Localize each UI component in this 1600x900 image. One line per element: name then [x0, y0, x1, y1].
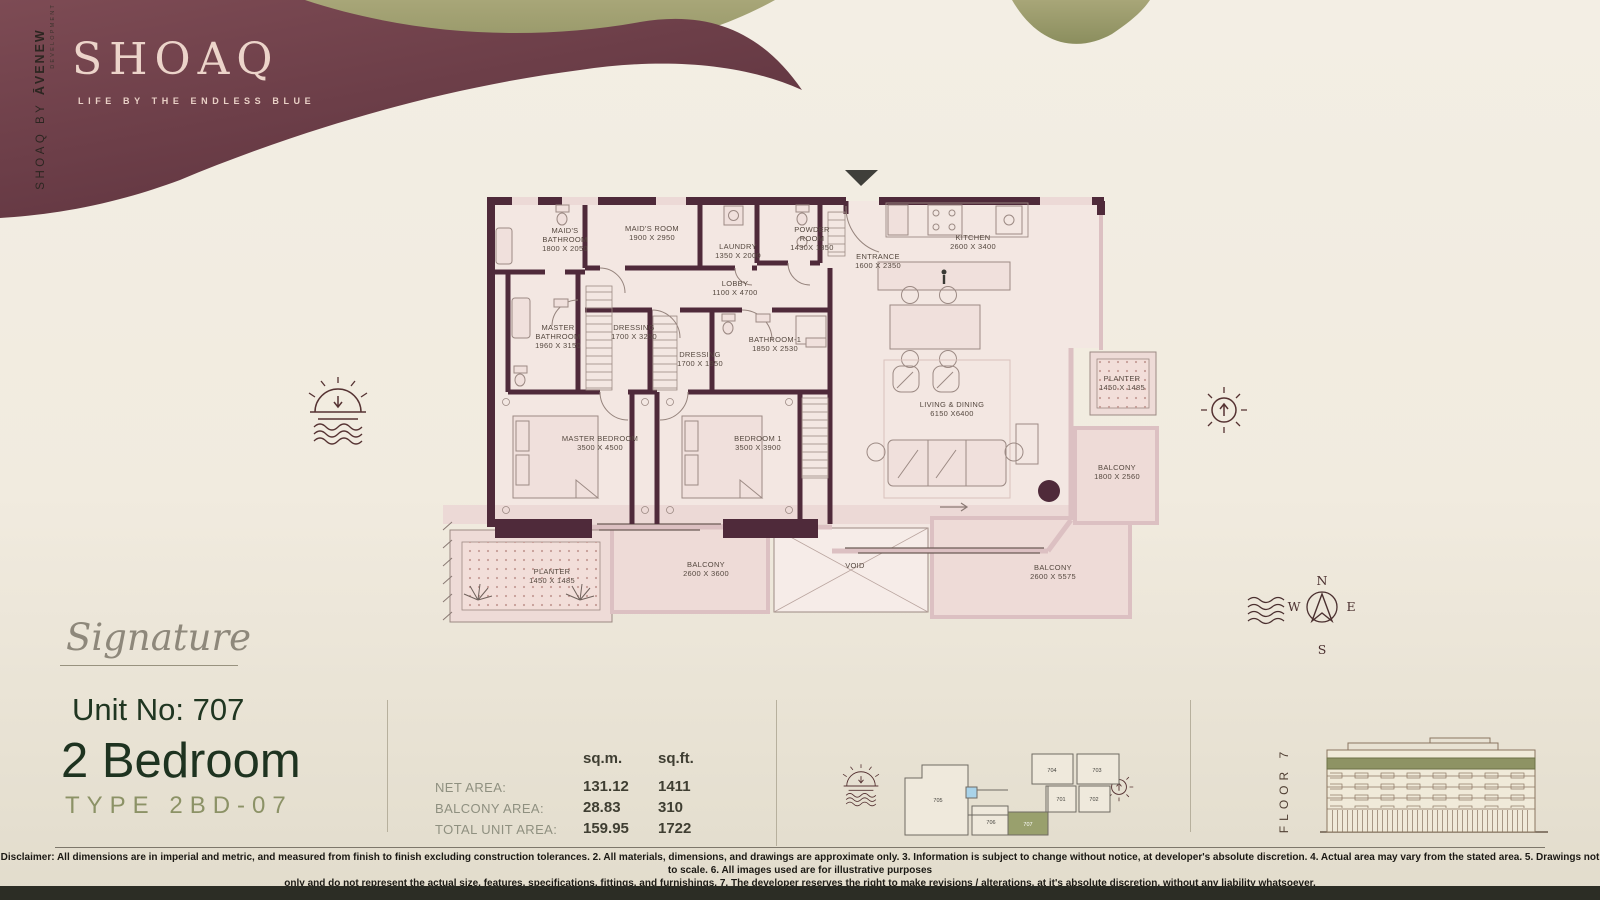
brand-tagline: LIFE BY THE ENDLESS BLUE — [78, 96, 315, 106]
waves-icon — [1248, 598, 1284, 624]
compass: N E S W — [1248, 573, 1356, 657]
brand-logo: SHOAQ — [72, 34, 279, 85]
sunrise-icon — [1201, 387, 1247, 433]
room-label: DRESSING1700 X 1950 — [677, 350, 723, 368]
key-plan: 705706707701702704703 — [843, 754, 1133, 835]
areas-col-sqm: sq.m. — [583, 750, 622, 767]
compass-e: E — [1346, 599, 1355, 614]
room-label: ENTRANCE1600 X 2350 — [855, 252, 901, 270]
divider-1 — [387, 700, 388, 832]
area-row-sqm: 131.12 — [583, 778, 629, 795]
keyplan-unit-number: 704 — [1047, 768, 1056, 774]
entrance-arrow-icon — [845, 170, 878, 186]
keyplan-unit-number: 707 — [1023, 822, 1032, 828]
area-row-sqm: 28.83 — [583, 799, 621, 816]
area-row-label: TOTAL UNIT AREA: — [435, 822, 557, 837]
compass-n: N — [1317, 573, 1328, 588]
keyplan-unit-number: 701 — [1056, 797, 1065, 803]
header-art — [0, 0, 1150, 218]
unit-type-name: 2 Bedroom — [61, 733, 301, 789]
disclaimer: Disclaimer: All dimensions are in imperi… — [0, 851, 1600, 890]
compass-w: W — [1288, 599, 1301, 614]
area-row-label: BALCONY AREA: — [435, 801, 544, 816]
vertical-brand-sub: DEVELOPMENT — [50, 3, 56, 215]
keyplan-unit-number: 705 — [933, 798, 942, 804]
room-label: PLANTER1450 X 1485 — [1099, 374, 1145, 392]
area-row-label: NET AREA: — [435, 780, 506, 795]
room-label: BALCONY2600 X 3600 — [683, 560, 729, 578]
area-row-sqft: 310 — [658, 799, 683, 816]
brochure-page: MAID'SBATHROOM1800 X 2050MAID'S ROOM1900… — [0, 0, 1600, 900]
highlighted-floor-band — [1327, 758, 1535, 769]
unit-number: Unit No: 707 — [72, 692, 244, 728]
room-label: BALCONY1800 X 2560 — [1094, 463, 1140, 481]
floor-label: FLOOR 7 — [1277, 735, 1291, 845]
divider-2 — [776, 700, 777, 846]
column-marker — [1038, 480, 1060, 502]
disclaimer-line-1: Disclaimer: All dimensions are in imperi… — [0, 851, 1600, 877]
keyplan-unit-number: 702 — [1089, 797, 1098, 803]
vertical-brand-name: SHOAQ BY — [35, 95, 47, 190]
floorplan: MAID'SBATHROOM1800 X 2050MAID'S ROOM1900… — [443, 170, 1157, 622]
areas-col-sqft: sq.ft. — [658, 750, 694, 767]
keyplan-unit-number: 706 — [986, 820, 995, 826]
keyplan-unit-number: 703 — [1092, 768, 1101, 774]
vertical-brand: SHOAQ BY ĀVENEW DEVELOPMENT — [31, 3, 49, 215]
room-label: MAID'S ROOM1900 X 2950 — [625, 224, 679, 242]
area-row-sqft: 1722 — [658, 820, 691, 837]
bottom-bar — [0, 886, 1600, 900]
room-label: KITCHEN2600 X 3400 — [950, 233, 996, 251]
disclaimer-rule — [55, 847, 1545, 848]
sunset-sea-icon — [309, 377, 367, 444]
room-label: LAUNDRY1350 X 2000 — [715, 242, 761, 260]
collection-signature: Signature — [60, 616, 238, 666]
area-row-sqm: 159.95 — [583, 820, 629, 837]
divider-3 — [1190, 700, 1191, 832]
room-label: BATHROOM-11850 X 2530 — [749, 335, 801, 353]
compass-s: S — [1318, 642, 1327, 657]
room-label: VOID — [845, 561, 865, 570]
room-label: BALCONY2600 X 5575 — [1030, 563, 1076, 581]
room-label: PLANTER1450 X 1485 — [529, 567, 575, 585]
vertical-brand-developer: ĀVENEW — [33, 28, 47, 95]
room-label: BEDROOM 13500 X 3900 — [734, 434, 782, 452]
keyplan-sunset-icon — [843, 764, 879, 806]
room-label: DRESSING1700 X 3250 — [611, 323, 657, 341]
building-elevation — [1320, 738, 1548, 832]
area-row-sqft: 1411 — [658, 778, 691, 795]
unit-type-code: TYPE 2BD-07 — [65, 792, 293, 820]
room-label: MASTERBATHROOM1960 X 3150 — [535, 323, 581, 350]
